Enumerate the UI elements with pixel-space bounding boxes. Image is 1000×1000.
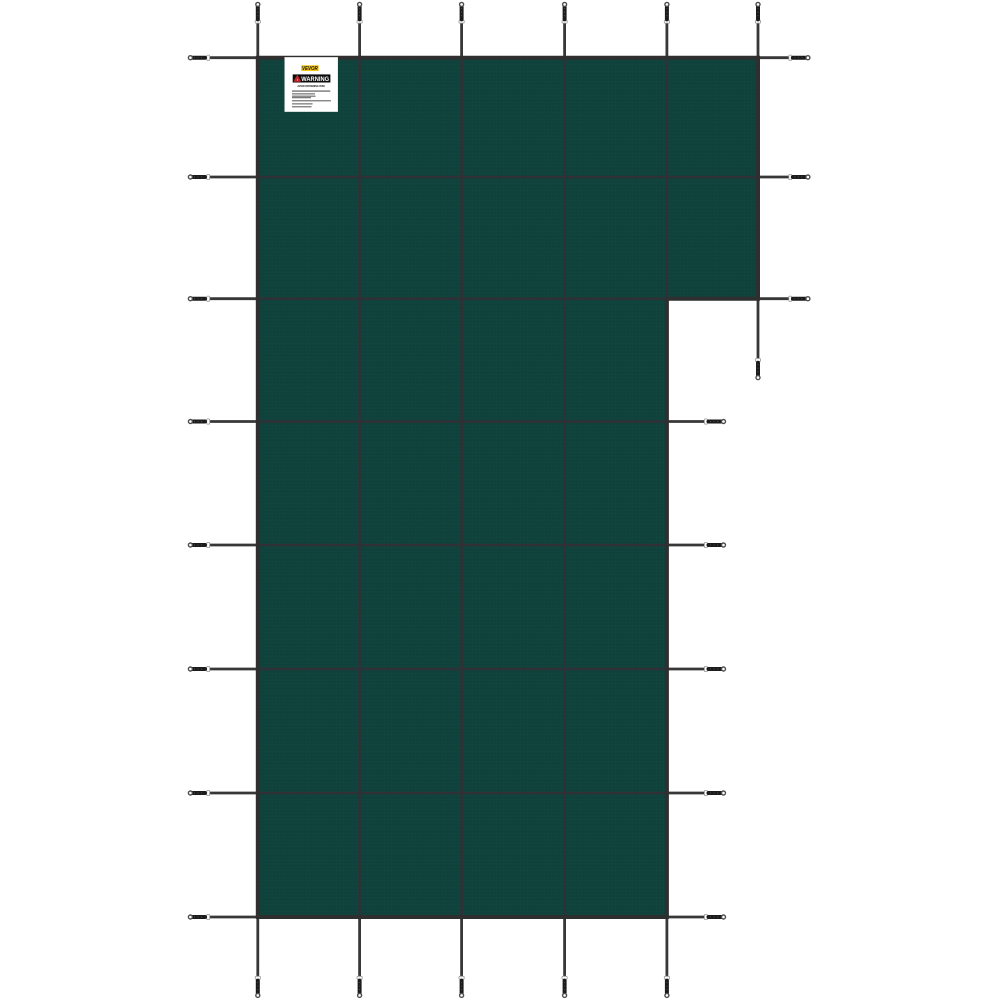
- svg-text:WARNING: WARNING: [301, 76, 329, 83]
- svg-text:VEVOR: VEVOR: [302, 66, 318, 72]
- svg-text:AVOID DROWNING RISK: AVOID DROWNING RISK: [297, 84, 325, 88]
- svg-text:!: !: [297, 78, 298, 82]
